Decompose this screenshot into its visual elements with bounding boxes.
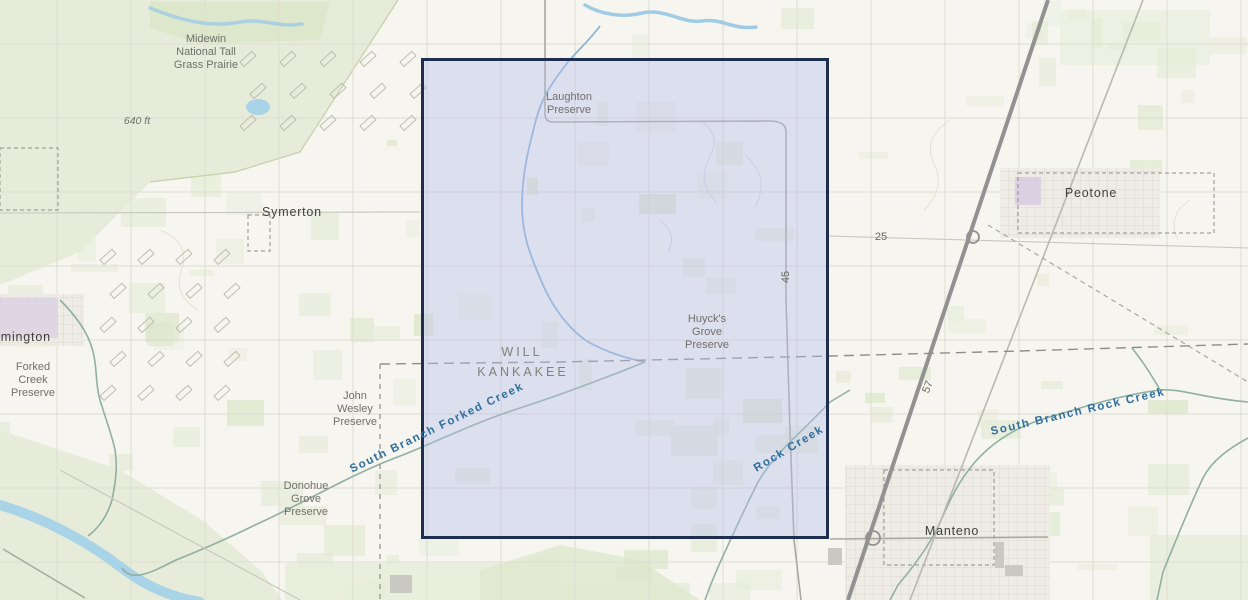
map-viewport[interactable]: Midewin National Tall Grass Prairie640 f…	[0, 0, 1248, 600]
selection-extent-graphic[interactable]	[421, 58, 829, 539]
